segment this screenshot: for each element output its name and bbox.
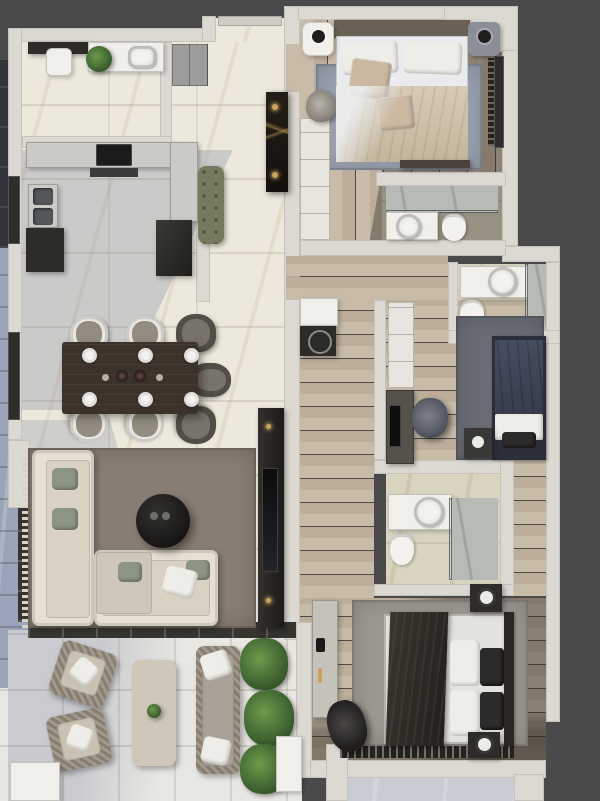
ensuite-shower (386, 186, 498, 212)
bath3-shower-glass (449, 498, 452, 580)
wall-right-ledge (502, 50, 518, 246)
master-wardrobe (300, 118, 330, 240)
extractor-vent (90, 168, 138, 177)
media-decor-light-1 (266, 424, 271, 429)
green-tufted-bench (198, 166, 224, 244)
master-lamp-left (312, 30, 325, 43)
ensuite-toilet (442, 214, 466, 241)
bedroom2-floor-strip (514, 460, 546, 596)
ensuite-sink (396, 214, 421, 239)
doorway-master (286, 44, 300, 92)
wall-right-upper (502, 246, 560, 262)
tv-screen (262, 468, 278, 572)
bedroom3-pillow-4 (480, 692, 504, 730)
bedroom3-pillow-1 (450, 640, 480, 686)
bath3-toilet (390, 534, 414, 565)
wall-top-left (8, 28, 214, 42)
corridor-closet-cabinet (300, 298, 338, 326)
floor-plan-render (0, 0, 600, 801)
entry-door (218, 16, 282, 26)
green-pillow-2 (52, 508, 78, 530)
rear-balcony-floor (348, 778, 514, 801)
centerpiece-ball-1 (102, 374, 109, 381)
terrace-sofa-pillow-2 (200, 735, 233, 766)
place-setting-4 (82, 392, 97, 407)
bedroom3-lamp-top (480, 591, 493, 604)
refrigerator (156, 220, 192, 276)
centerpiece-vase-1 (116, 370, 128, 382)
bedroom2-wardrobe (388, 302, 414, 388)
potted-plant-icon (86, 46, 112, 72)
green-pillow-1 (52, 468, 78, 490)
wall-rear-balcony-stub-right (514, 774, 544, 801)
kitchen-sink-basin-2 (33, 208, 53, 225)
centerpiece-vase-2 (134, 370, 146, 382)
corridor-floor-upper (300, 254, 448, 300)
bedroom2-duvet (495, 340, 543, 418)
bedroom3-pillow-3 (480, 648, 504, 686)
place-setting-6 (184, 392, 199, 407)
wall-master-south (300, 240, 506, 256)
terrace-table-plant (147, 704, 161, 718)
place-setting-2 (138, 348, 153, 363)
bedroom2-cushion (502, 432, 536, 448)
wall-corridor-east (374, 300, 386, 460)
green-pillow-3 (118, 562, 142, 582)
centerpiece-ball-2 (156, 374, 163, 381)
terrace-plant-1 (240, 638, 288, 690)
hall-tall-cabinet (172, 44, 208, 86)
cooktop-icon (96, 144, 132, 166)
master-foot-bench (400, 160, 470, 168)
bedroom2-desk-chair (412, 398, 448, 438)
bedroom3-dark-throw (386, 612, 449, 746)
terrace-planter-wall (276, 736, 302, 792)
utility-sink (128, 46, 156, 68)
bedroom2-monitor (390, 406, 400, 446)
place-setting-1 (82, 348, 97, 363)
utility-stool (46, 48, 72, 76)
window-master-east (494, 56, 504, 148)
master-sheet-fold (336, 86, 468, 162)
master-lamp-right (478, 30, 491, 43)
bath2-sink (488, 267, 517, 296)
coffee-table (136, 494, 190, 548)
oven-column (26, 228, 64, 272)
media-decor-light-2 (266, 598, 271, 603)
coffee-cup-1 (150, 512, 158, 520)
bedroom3-desk-phone (316, 638, 325, 652)
wall-ensuite-north (376, 172, 506, 186)
kitchen-counter-right (170, 142, 198, 222)
rug-fringe (22, 448, 28, 628)
bedroom3-pillow-2 (450, 690, 480, 736)
bedroom2-lamp (472, 436, 484, 448)
doorway-corridor (286, 256, 300, 300)
kitchen-sink-basin-1 (33, 188, 53, 205)
washing-machine-door (308, 330, 332, 354)
wall-top-right (298, 6, 446, 20)
console-candle-light-1 (272, 104, 278, 110)
master-armchair (306, 90, 336, 122)
master-pillow-2 (403, 41, 462, 75)
window-left-lower (8, 332, 20, 420)
window-left-upper (8, 176, 20, 244)
place-setting-3 (184, 348, 199, 363)
bath3-shower (452, 498, 498, 580)
console-candle-light-2 (272, 172, 278, 178)
wall-bath3-east (500, 460, 514, 596)
terrace-planter-box (10, 762, 60, 801)
curtain-master-east (488, 58, 494, 146)
bedroom3-headboard (504, 612, 514, 746)
wall-entry-left (202, 16, 216, 42)
bath3-sink (414, 497, 444, 527)
bedroom3-desk-pen (318, 668, 322, 683)
bedroom3-lamp-bottom (478, 738, 491, 751)
bedroom3-desk (312, 600, 338, 718)
place-setting-5 (138, 392, 153, 407)
coffee-cup-2 (162, 512, 170, 520)
